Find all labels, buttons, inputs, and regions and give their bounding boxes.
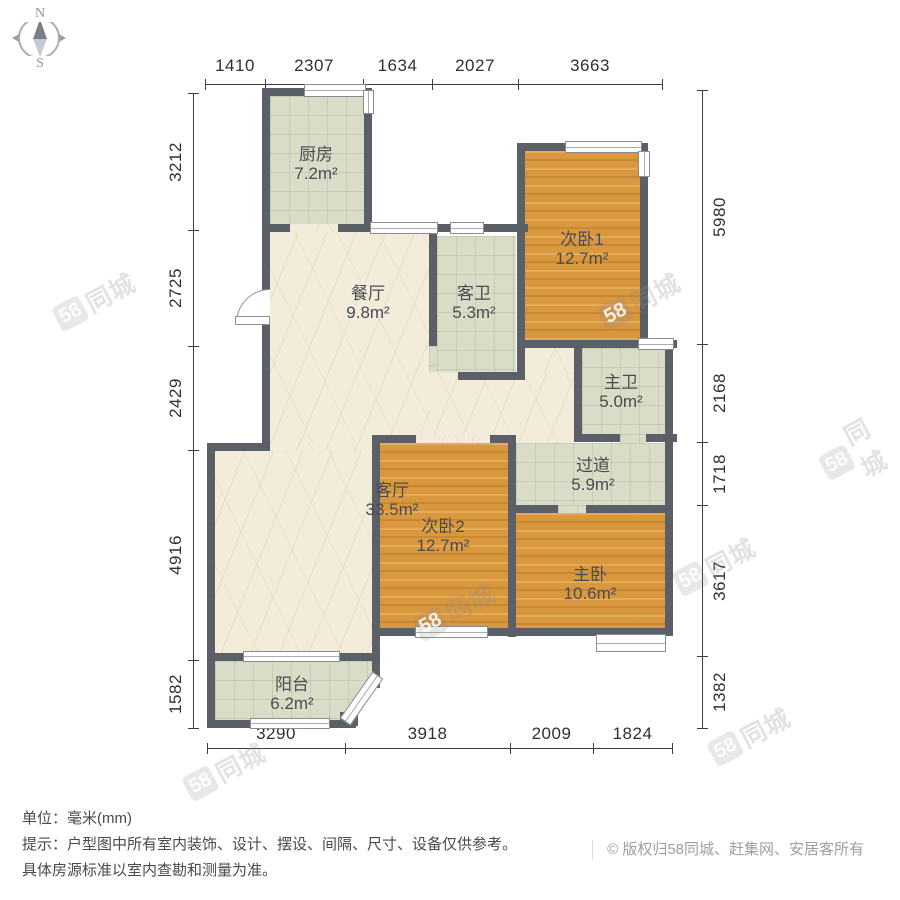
dim-tick — [188, 660, 199, 661]
dim-label-bottom-2: 2009 — [517, 724, 587, 744]
watermark-58tongcheng: 58同城 — [178, 734, 271, 806]
wall-segment — [665, 340, 673, 636]
window-icon — [565, 141, 642, 153]
dim-label-left-3: 4916 — [166, 520, 186, 590]
dim-tick — [593, 743, 594, 754]
watermark-logo-icon: 58 — [817, 443, 856, 481]
dim-tick — [662, 79, 663, 90]
tip-line-2: 具体房源标准以室内查勘和测量为准。 — [22, 858, 517, 884]
wall-segment — [372, 435, 380, 688]
wall-segment — [372, 435, 416, 443]
dim-tick — [697, 505, 708, 506]
watermark-58tongcheng: 58同城 — [806, 409, 893, 501]
room-floor-dining-ext — [270, 443, 372, 451]
watermark-text: 同城 — [837, 409, 894, 485]
dim-label-right-1: 2168 — [710, 358, 730, 428]
dim-tick — [672, 743, 673, 754]
compass-north-label: N — [10, 6, 70, 22]
dim-label-right-0: 5980 — [710, 182, 730, 252]
dim-tick — [188, 93, 199, 94]
window-icon — [304, 84, 366, 97]
wall-segment — [207, 653, 245, 661]
dim-label-bottom-1: 3918 — [393, 724, 463, 744]
room-label-hallway: 过道5.9m² — [571, 456, 614, 494]
dim-tick — [188, 450, 199, 451]
wall-segment — [640, 175, 648, 348]
window-icon — [596, 634, 666, 652]
wall-segment — [574, 434, 620, 442]
room-label-balcony: 阳台6.2m² — [270, 675, 313, 713]
dim-label-right-4: 1382 — [710, 657, 730, 727]
compass-needle-north-icon — [33, 19, 47, 39]
watermark-logo-icon: 58 — [51, 294, 90, 332]
window-pane-line — [305, 90, 365, 91]
room-label-kitchen: 厨房7.2m² — [294, 145, 337, 183]
dim-label-left-4: 1582 — [166, 659, 186, 729]
compass-south-label: S — [10, 56, 70, 72]
dim-label-top-4: 3663 — [555, 56, 625, 76]
dim-tick — [188, 346, 199, 347]
watermark-58tongcheng: 58同城 — [48, 264, 141, 336]
wall-segment — [516, 505, 558, 513]
window-pane-line — [451, 228, 483, 229]
dim-label-right-2: 1718 — [710, 439, 730, 509]
door-opening — [429, 346, 437, 372]
wall-segment — [207, 443, 215, 661]
window-icon — [243, 651, 340, 662]
watermark-text: 同城 — [699, 529, 762, 585]
dim-label-left-2: 2429 — [166, 363, 186, 433]
compass-west-arrow-icon — [12, 34, 19, 42]
wall-segment — [372, 628, 418, 636]
compass: N S — [10, 8, 70, 70]
dim-line-right — [702, 90, 703, 728]
tip-line-1: 提示：户型图中所有室内装饰、设计、摆设、间隔、尺寸、设备仅供参考。 — [22, 832, 517, 858]
window-icon — [450, 222, 484, 234]
window-pane-line — [371, 228, 437, 229]
dim-line-top — [205, 84, 662, 85]
watermark-logo-icon: 58 — [706, 729, 745, 767]
window-pane-line — [597, 643, 665, 644]
dim-tick — [188, 728, 199, 729]
window-pane-line — [244, 656, 339, 657]
window-icon — [370, 222, 438, 234]
window-icon — [638, 338, 674, 350]
compass-needle-south-icon — [33, 39, 47, 57]
wall-segment — [262, 232, 270, 290]
wall-segment — [207, 720, 252, 728]
wall-segment — [262, 224, 292, 232]
room-label-bedroom2-2: 次卧212.7m² — [417, 517, 470, 555]
dim-label-bottom-3: 1824 — [598, 724, 668, 744]
wall-segment — [207, 661, 215, 728]
dim-tick — [205, 79, 206, 90]
window-icon — [415, 626, 488, 638]
dim-tick — [510, 743, 511, 754]
dim-tick — [207, 743, 208, 754]
door-opening — [290, 224, 338, 232]
room-label-living: 客厅33.5m² — [366, 481, 419, 519]
dim-line-left — [193, 93, 194, 728]
door-opening — [620, 434, 646, 443]
entry-door-leaf-icon — [235, 316, 270, 325]
dim-label-right-3: 3617 — [710, 546, 730, 616]
dim-tick — [188, 230, 199, 231]
dim-tick — [345, 743, 346, 754]
floorplan-page: N S 厨房7.2m² 餐厅9.8m² 客卫5.3m² 次卧112.7m² 主卫… — [0, 0, 900, 900]
room-label-dining: 餐厅9.8m² — [346, 284, 389, 322]
dim-tick — [697, 442, 708, 443]
wall-segment — [262, 88, 270, 232]
door-opening — [558, 505, 586, 513]
compass-east-arrow-icon — [59, 34, 66, 42]
wall-segment — [517, 143, 567, 151]
wall-segment — [508, 435, 516, 637]
room-label-guest-bath: 客卫5.3m² — [452, 284, 495, 322]
wall-segment — [458, 372, 524, 380]
copyright-note: © 版权归58同城、赶集网、安居客所有 — [592, 840, 864, 860]
room-label-bedroom2-1: 次卧112.7m² — [556, 230, 609, 268]
dim-label-left-0: 3212 — [166, 127, 186, 197]
dim-label-top-0: 1410 — [200, 56, 270, 76]
room-floor-living — [215, 451, 372, 653]
dim-tick — [697, 656, 708, 657]
wall-segment — [262, 324, 270, 450]
dim-label-top-1: 2307 — [279, 56, 349, 76]
watermark-text: 同城 — [79, 264, 142, 320]
wall-segment — [336, 224, 372, 232]
unit-note: 单位：毫米(mm) — [22, 806, 517, 832]
dim-label-left-1: 2725 — [166, 253, 186, 323]
window-pane-line — [251, 723, 329, 724]
wall-segment — [207, 443, 270, 451]
dim-label-top-2: 1634 — [363, 56, 433, 76]
window-icon — [363, 90, 374, 114]
window-icon — [638, 151, 650, 177]
dim-tick — [697, 728, 708, 729]
footer-notes: 单位：毫米(mm) 提示：户型图中所有室内装饰、设计、摆设、间隔、尺寸、设备仅供… — [22, 806, 517, 884]
room-floor-open-mid — [430, 372, 574, 443]
wall-segment — [586, 505, 673, 513]
watermark-logo-icon: 58 — [181, 764, 220, 802]
copyright-text: 版权归58同城、赶集网、安居客所有 — [622, 841, 864, 858]
dim-line-bottom — [207, 748, 672, 749]
dim-tick — [518, 79, 519, 90]
door-opening — [416, 435, 490, 443]
window-pane-line — [566, 147, 641, 148]
window-icon — [250, 718, 330, 729]
dim-tick — [697, 90, 708, 91]
wall-segment — [574, 348, 582, 442]
watermark-logo-icon: 58 — [671, 559, 710, 597]
dim-tick — [432, 79, 433, 90]
window-pane-line — [368, 91, 369, 113]
window-pane-line — [639, 344, 673, 345]
dim-tick — [697, 344, 708, 345]
window-pane-line — [644, 152, 645, 176]
wall-segment — [429, 228, 437, 346]
room-label-master-bath: 主卫5.0m² — [599, 373, 642, 411]
room-floor-dining — [270, 228, 430, 443]
room-label-master-bedroom: 主卧10.6m² — [564, 565, 617, 603]
window-pane-line — [416, 632, 487, 633]
wall-segment — [364, 112, 372, 232]
watermark-text: 同城 — [734, 699, 797, 755]
copyright-icon: © — [607, 841, 618, 858]
dim-label-top-3: 2027 — [440, 56, 510, 76]
room-floor-open-mid-2 — [525, 348, 574, 374]
